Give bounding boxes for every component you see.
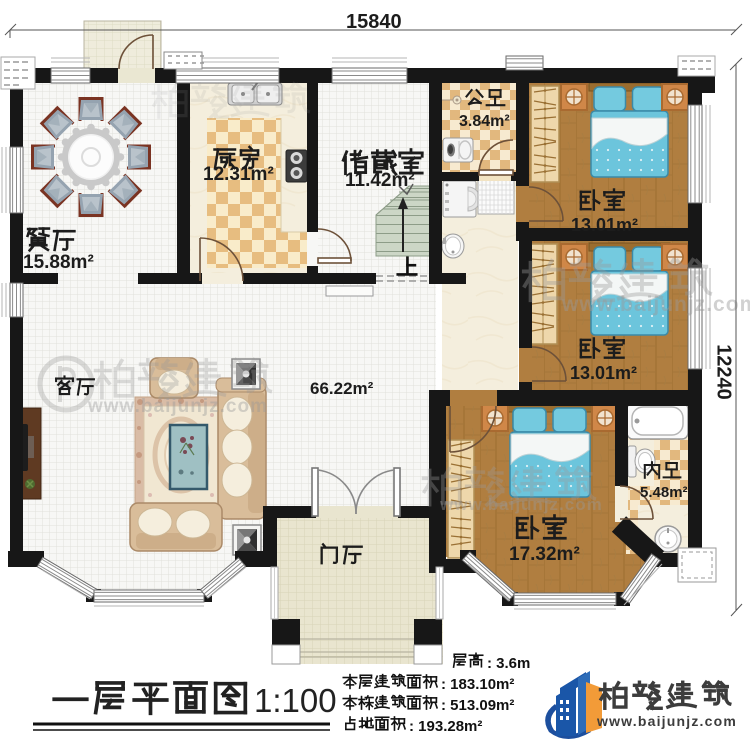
- svg-text:17.32m²: 17.32m²: [509, 544, 580, 565]
- svg-text:: 193.28m²: : 193.28m²: [409, 718, 482, 735]
- svg-text:: 183.10m²: : 183.10m²: [441, 676, 514, 693]
- svg-text:15840: 15840: [346, 11, 402, 33]
- svg-text:: 3.6m: : 3.6m: [487, 655, 530, 672]
- svg-text:: 513.09m²: : 513.09m²: [441, 697, 514, 714]
- svg-text:3.84m²: 3.84m²: [459, 113, 510, 130]
- svg-text:5.48m²: 5.48m²: [640, 484, 688, 501]
- svg-text:www.baijunjz.com: www.baijunjz.com: [596, 713, 737, 729]
- svg-text:1:100: 1:100: [254, 682, 337, 719]
- svg-text:66.22m²: 66.22m²: [310, 379, 374, 398]
- svg-text:12.31m²: 12.31m²: [203, 164, 274, 185]
- svg-text:www.baijunjz.com: www.baijunjz.com: [439, 495, 603, 514]
- svg-text:12240: 12240: [713, 344, 735, 400]
- svg-text:15.88m²: 15.88m²: [23, 252, 94, 273]
- svg-text:13.01m²: 13.01m²: [571, 215, 638, 235]
- svg-text:www.baijunjz.com: www.baijunjz.com: [561, 293, 750, 316]
- svg-text:13.01m²: 13.01m²: [570, 363, 637, 383]
- svg-text:11.42m²: 11.42m²: [345, 170, 415, 191]
- svg-text:www.baijunjz.com: www.baijunjz.com: [87, 396, 268, 417]
